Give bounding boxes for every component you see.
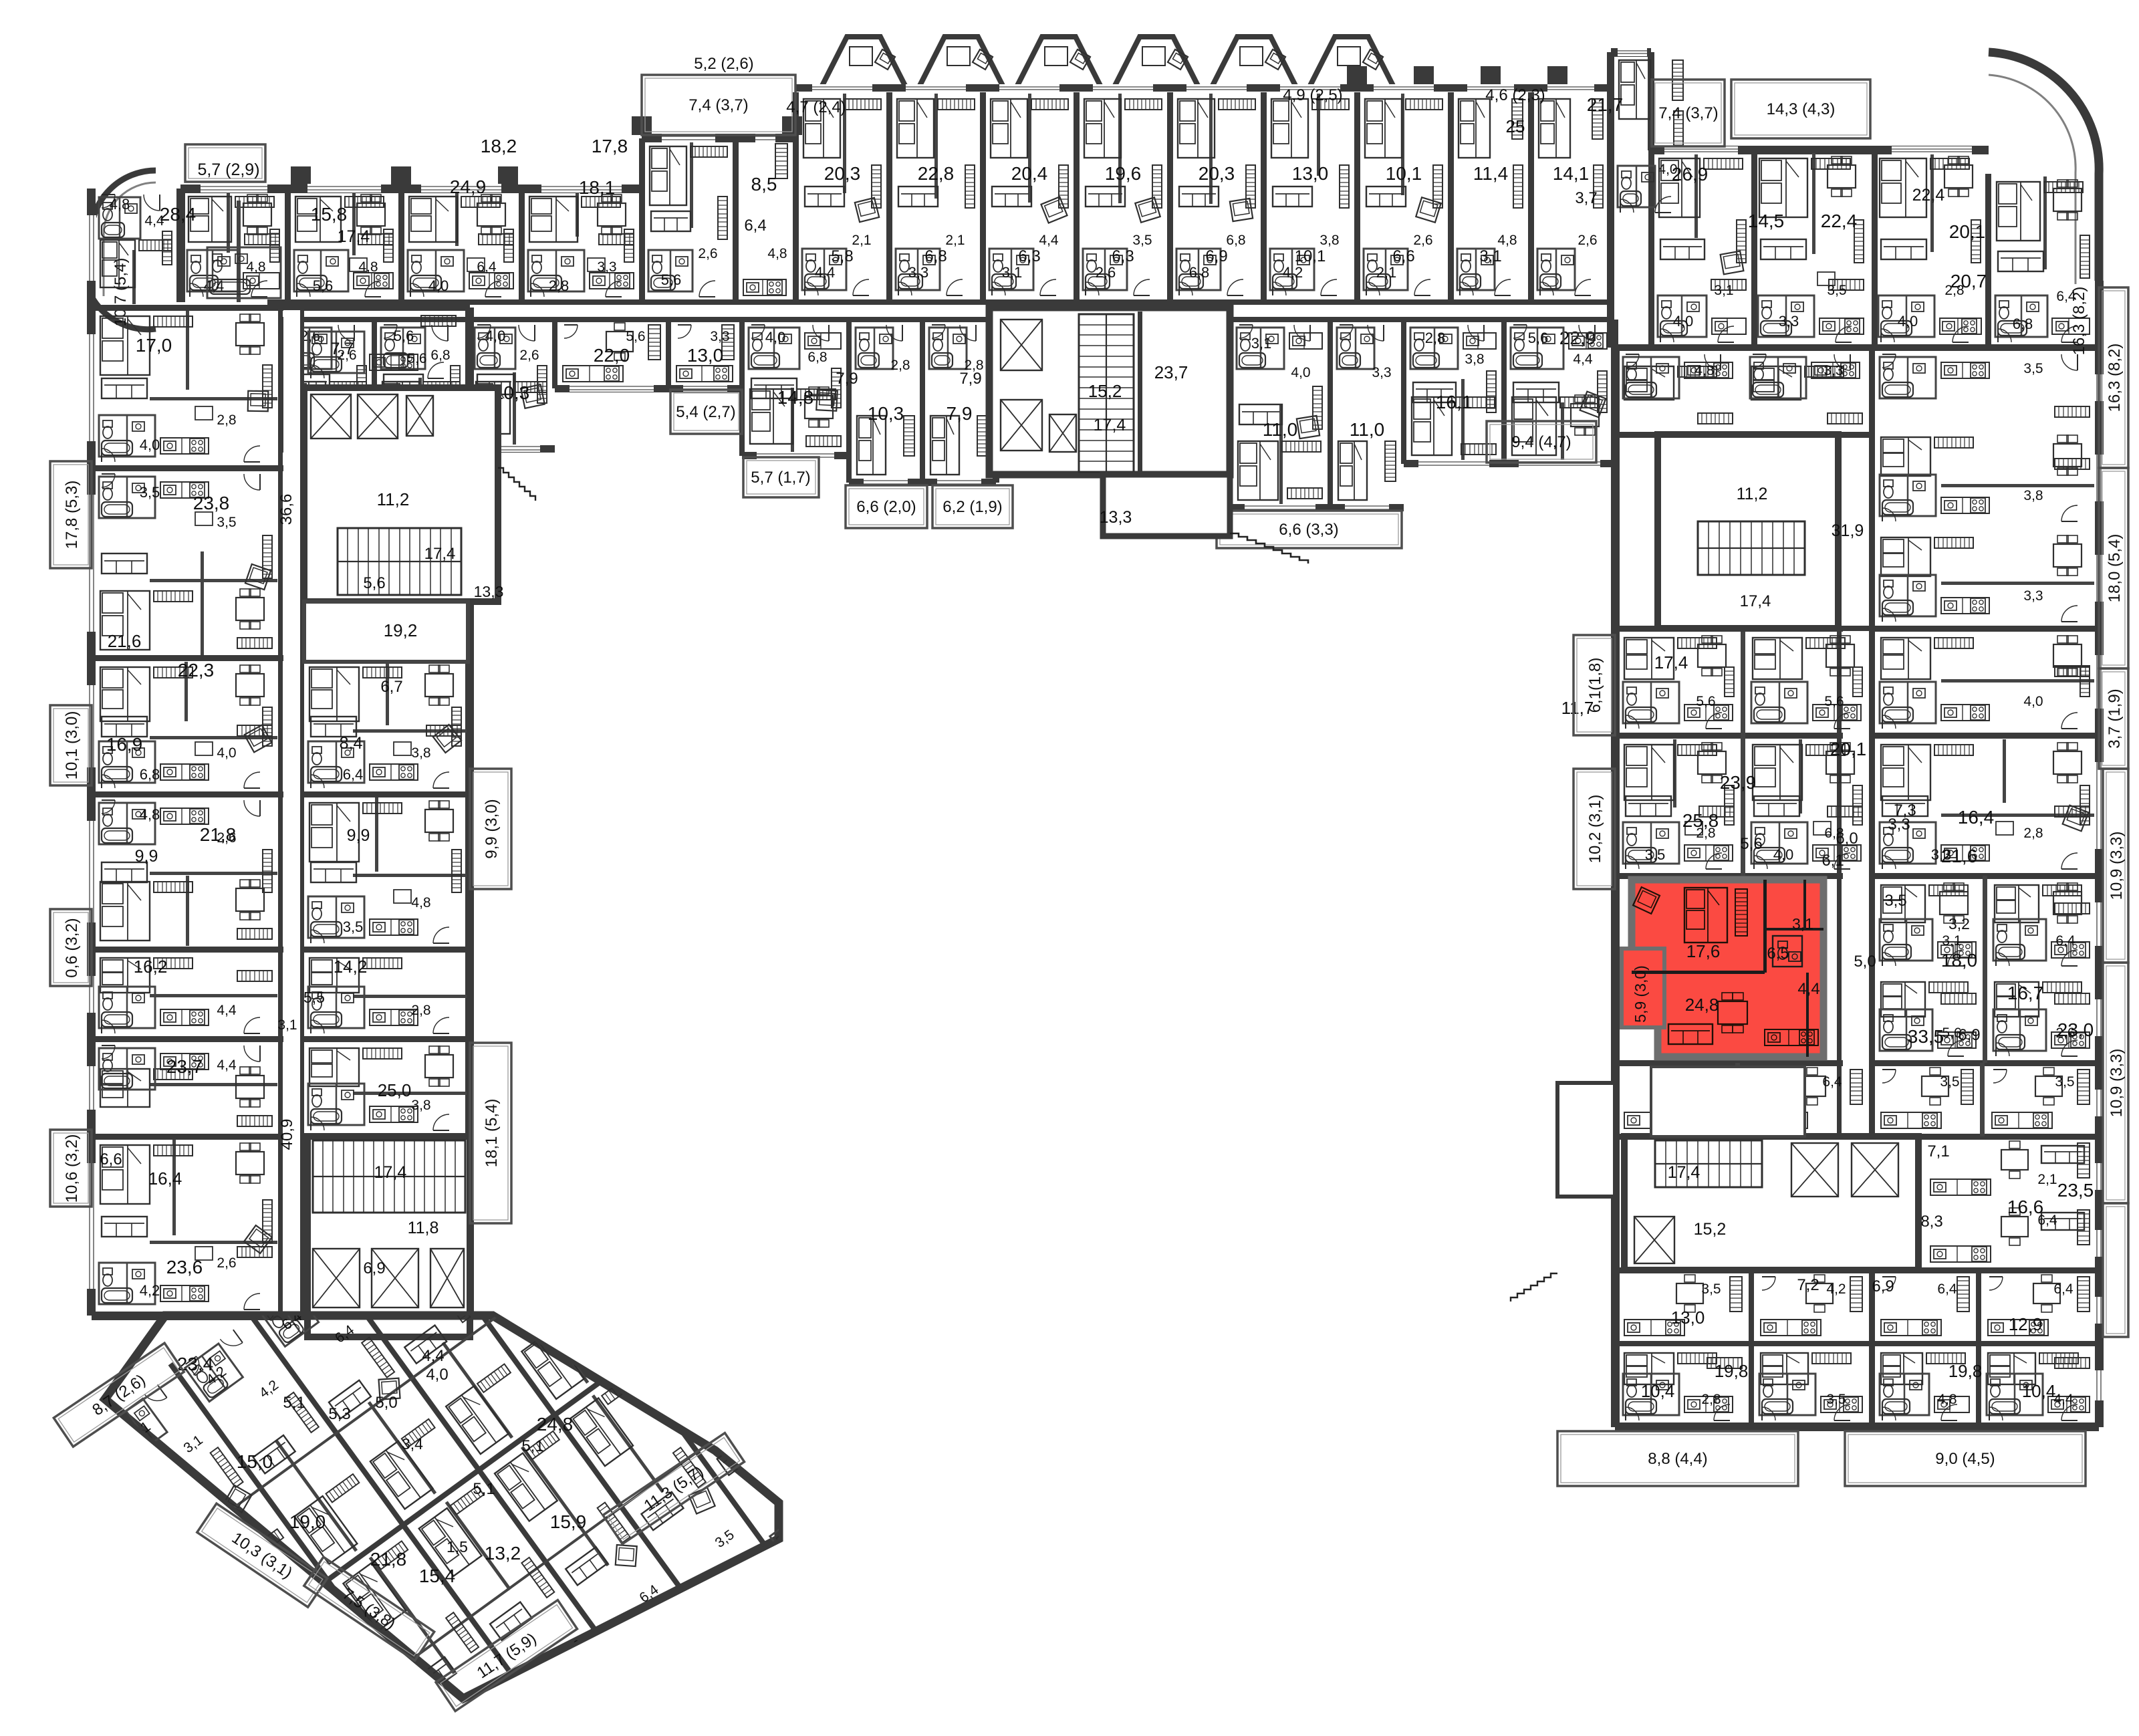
svg-text:5,8: 5,8: [831, 247, 853, 265]
svg-text:6,2 (1,9): 6,2 (1,9): [942, 498, 1002, 516]
svg-text:18,0: 18,0: [1941, 950, 1978, 971]
svg-text:31,9: 31,9: [1832, 521, 1864, 540]
svg-text:8,8 (4,4): 8,8 (4,4): [1648, 1450, 1707, 1468]
svg-text:6,4: 6,4: [477, 259, 497, 275]
svg-text:2,8: 2,8: [1701, 1392, 1721, 1407]
svg-text:11,0: 11,0: [1350, 419, 1384, 440]
svg-text:2,8: 2,8: [890, 358, 910, 373]
svg-text:7,9: 7,9: [959, 370, 981, 388]
svg-text:33,5: 33,5: [1908, 1026, 1944, 1047]
svg-text:6,9: 6,9: [1872, 1277, 1894, 1295]
svg-text:4,8: 4,8: [1937, 1392, 1957, 1407]
svg-text:4,0: 4,0: [140, 437, 160, 453]
svg-text:10,2 (3,1): 10,2 (3,1): [1586, 795, 1604, 864]
svg-text:17,4: 17,4: [1668, 1163, 1701, 1182]
svg-text:2,6: 2,6: [1413, 233, 1432, 248]
svg-text:3,3: 3,3: [1372, 365, 1391, 380]
svg-text:4,8: 4,8: [411, 895, 430, 910]
svg-text:7,7: 7,7: [331, 340, 354, 358]
svg-text:4,9 (2,5): 4,9 (2,5): [1283, 86, 1342, 104]
svg-text:5,4 (2,7): 5,4 (2,7): [676, 403, 735, 421]
svg-text:5,0: 5,0: [375, 1394, 397, 1412]
svg-text:7,9: 7,9: [947, 403, 973, 424]
svg-text:3,5: 3,5: [1884, 892, 1906, 910]
svg-text:5,6: 5,6: [407, 351, 426, 366]
svg-text:5,6: 5,6: [661, 271, 682, 288]
svg-text:17,4: 17,4: [374, 1163, 407, 1182]
svg-text:2,6: 2,6: [1578, 233, 1597, 248]
svg-text:3,3: 3,3: [597, 259, 616, 275]
svg-text:3,7: 3,7: [1575, 189, 1597, 207]
svg-text:3,1: 3,1: [1942, 933, 1961, 949]
svg-text:9,0 (4,5): 9,0 (4,5): [1935, 1450, 1995, 1468]
svg-text:5,1: 5,1: [473, 1480, 495, 1498]
svg-text:14,8: 14,8: [777, 387, 814, 408]
svg-text:2,1: 2,1: [2037, 1172, 2057, 1187]
svg-text:13,3: 13,3: [474, 583, 504, 600]
svg-text:17,4: 17,4: [1094, 416, 1126, 435]
svg-text:6,4: 6,4: [2055, 933, 2075, 949]
svg-text:10,4: 10,4: [1641, 1381, 1675, 1401]
svg-text:18,0 (5,4): 18,0 (5,4): [2106, 534, 2124, 603]
svg-text:40,9: 40,9: [278, 1119, 296, 1150]
svg-text:4,4: 4,4: [217, 1058, 237, 1073]
svg-text:2,6: 2,6: [519, 348, 539, 363]
svg-text:5,6: 5,6: [313, 277, 334, 294]
svg-text:16,6: 16,6: [2007, 1197, 2044, 1217]
svg-text:21,8: 21,8: [370, 1549, 407, 1570]
svg-text:4,8: 4,8: [140, 806, 160, 823]
svg-text:4,0: 4,0: [485, 328, 506, 344]
svg-text:1,5: 1,5: [447, 1538, 468, 1556]
svg-text:3,3: 3,3: [2023, 588, 2043, 604]
svg-text:4,4: 4,4: [1039, 233, 1059, 248]
svg-text:3,3: 3,3: [908, 264, 929, 281]
svg-text:17,4: 17,4: [1740, 592, 1771, 610]
svg-text:11,0: 11,0: [1263, 419, 1297, 440]
svg-text:4,8: 4,8: [110, 196, 130, 213]
svg-text:8,4: 8,4: [340, 734, 363, 753]
svg-text:8,5: 8,5: [751, 174, 777, 195]
svg-text:21,6: 21,6: [1941, 846, 1978, 866]
svg-text:6,1(1,8): 6,1(1,8): [1586, 658, 1604, 713]
svg-text:22,4: 22,4: [1821, 211, 1858, 231]
svg-text:3,5: 3,5: [1826, 1392, 1846, 1407]
svg-text:6,6: 6,6: [1392, 247, 1414, 265]
svg-text:5,6: 5,6: [1696, 694, 1715, 709]
svg-text:6,8: 6,8: [430, 348, 450, 363]
svg-text:9,4 (4,7): 9,4 (4,7): [1511, 433, 1571, 451]
svg-text:36,6: 36,6: [277, 494, 295, 525]
svg-text:10,1: 10,1: [1295, 247, 1326, 265]
svg-text:4,4: 4,4: [217, 1003, 237, 1018]
svg-text:2,8: 2,8: [217, 412, 236, 428]
svg-text:3,5: 3,5: [1940, 1074, 1959, 1090]
svg-text:16,9: 16,9: [106, 734, 143, 755]
svg-text:24,8: 24,8: [1685, 995, 1719, 1015]
svg-text:14,3 (4,3): 14,3 (4,3): [1767, 100, 1836, 118]
svg-text:3,8: 3,8: [1465, 352, 1484, 367]
svg-text:11,8: 11,8: [408, 1219, 439, 1237]
svg-text:6,6: 6,6: [100, 1150, 122, 1168]
svg-text:19,0: 19,0: [289, 1511, 326, 1532]
svg-text:2,8: 2,8: [1425, 330, 1446, 346]
svg-text:6,9: 6,9: [1958, 1026, 1980, 1044]
svg-text:16,4: 16,4: [1958, 807, 1995, 828]
svg-text:13,0: 13,0: [687, 345, 724, 366]
svg-text:6,9: 6,9: [1205, 247, 1227, 265]
svg-text:25,8: 25,8: [1682, 810, 1719, 831]
svg-text:20,7: 20,7: [1951, 271, 1987, 291]
svg-text:5,6: 5,6: [1740, 835, 1762, 853]
svg-text:10,9 (3,3): 10,9 (3,3): [2108, 1049, 2126, 1118]
svg-text:6,5: 6,5: [1767, 945, 1789, 963]
svg-text:7,2: 7,2: [1797, 1276, 1819, 1294]
svg-text:3,5: 3,5: [2023, 361, 2043, 376]
svg-text:16,3 (8,2): 16,3 (8,2): [2070, 287, 2088, 356]
svg-text:3,5: 3,5: [2055, 1074, 2074, 1090]
svg-text:3,5: 3,5: [140, 484, 160, 501]
svg-text:19,6: 19,6: [1105, 163, 1142, 184]
svg-text:4,4: 4,4: [1797, 980, 1819, 998]
svg-text:4,0: 4,0: [1773, 846, 1794, 863]
svg-text:4,0: 4,0: [428, 277, 449, 294]
svg-text:20,3: 20,3: [1199, 163, 1235, 184]
svg-text:22,4: 22,4: [1912, 186, 1945, 205]
svg-text:6,7: 6,7: [380, 678, 402, 696]
svg-text:6,4: 6,4: [1937, 1281, 1957, 1297]
svg-text:3,1: 3,1: [277, 1017, 297, 1033]
svg-text:4,2: 4,2: [1826, 1281, 1846, 1297]
svg-text:20,1: 20,1: [1830, 739, 1867, 759]
svg-text:3,5: 3,5: [1645, 846, 1666, 863]
svg-text:4,8: 4,8: [1497, 233, 1517, 248]
svg-text:4,8: 4,8: [767, 246, 787, 261]
svg-text:4,4: 4,4: [2053, 1392, 2073, 1407]
svg-text:6,8: 6,8: [1226, 233, 1245, 248]
svg-text:12,9: 12,9: [2009, 1314, 2043, 1334]
svg-text:28,4: 28,4: [160, 204, 197, 225]
svg-text:4,4: 4,4: [422, 1347, 444, 1365]
svg-text:16,3 (8,2): 16,3 (8,2): [2106, 344, 2124, 412]
svg-text:3,3: 3,3: [1823, 363, 1843, 378]
svg-text:6,8: 6,8: [2013, 316, 2033, 332]
svg-text:22,0: 22,0: [594, 345, 630, 366]
svg-text:2,1: 2,1: [852, 233, 871, 248]
svg-text:6,4: 6,4: [1822, 1074, 1842, 1090]
svg-text:10,9 (3,3): 10,9 (3,3): [2108, 832, 2126, 900]
svg-text:17,4: 17,4: [424, 545, 456, 563]
svg-text:4,0: 4,0: [2023, 694, 2043, 709]
svg-text:4,4: 4,4: [144, 213, 164, 229]
svg-text:16,4: 16,4: [148, 1168, 182, 1189]
svg-text:6,0: 6,0: [1836, 830, 1858, 848]
svg-text:10,3: 10,3: [868, 403, 904, 424]
svg-text:2,6: 2,6: [1096, 264, 1116, 281]
svg-text:5,9 (3,0): 5,9 (3,0): [1632, 965, 1649, 1023]
svg-text:2,1: 2,1: [945, 233, 965, 248]
svg-text:2,1: 2,1: [1376, 264, 1397, 281]
svg-text:7,1: 7,1: [1927, 1142, 1949, 1160]
svg-text:18,1 (5,4): 18,1 (5,4): [483, 1099, 501, 1168]
svg-text:18,1: 18,1: [579, 177, 616, 198]
svg-text:11,2: 11,2: [377, 489, 410, 509]
svg-text:20,4: 20,4: [1011, 163, 1048, 184]
svg-text:14,1: 14,1: [1553, 163, 1590, 184]
svg-text:23,8: 23,8: [193, 493, 230, 513]
svg-text:25,0: 25,0: [378, 1080, 412, 1100]
svg-text:15,2: 15,2: [1088, 381, 1122, 401]
svg-text:23,5: 23,5: [2057, 1180, 2094, 1201]
svg-text:2,8: 2,8: [2023, 826, 2043, 841]
svg-text:8,3: 8,3: [1920, 1213, 1942, 1231]
svg-text:3,8: 3,8: [411, 1098, 430, 1113]
svg-text:24,9: 24,9: [450, 176, 487, 197]
svg-text:2,8: 2,8: [549, 277, 570, 294]
svg-text:4,0: 4,0: [426, 1366, 448, 1384]
svg-text:6,4: 6,4: [343, 766, 364, 783]
svg-text:10,1 (3,0): 10,1 (3,0): [63, 711, 81, 780]
svg-text:18,2: 18,2: [481, 136, 517, 156]
svg-text:21,7: 21,7: [1587, 94, 1624, 115]
svg-text:5,6: 5,6: [363, 574, 385, 592]
svg-text:4,8: 4,8: [358, 259, 378, 275]
svg-text:6,6 (2,0): 6,6 (2,0): [856, 498, 916, 516]
svg-text:15,4: 15,4: [419, 1566, 456, 1586]
svg-text:3,8: 3,8: [1319, 233, 1339, 248]
svg-text:19,2: 19,2: [384, 620, 418, 640]
svg-text:10,6 (3,2): 10,6 (3,2): [63, 1134, 81, 1203]
svg-text:17,4: 17,4: [1654, 652, 1688, 672]
svg-text:3,1: 3,1: [1792, 915, 1813, 933]
svg-text:25: 25: [1506, 116, 1525, 136]
svg-text:5,2 (2,6): 5,2 (2,6): [694, 55, 753, 73]
svg-text:6,6 (3,3): 6,6 (3,3): [1279, 521, 1338, 539]
svg-text:15,0: 15,0: [237, 1451, 273, 1472]
svg-text:6,8: 6,8: [140, 766, 160, 783]
svg-text:10,4: 10,4: [2022, 1381, 2056, 1401]
svg-text:19,8: 19,8: [1948, 1361, 1983, 1381]
svg-text:0,6 (3,2): 0,6 (3,2): [63, 918, 81, 977]
svg-text:20,3: 20,3: [824, 163, 861, 184]
svg-text:6,4: 6,4: [744, 217, 766, 235]
svg-text:14,2: 14,2: [334, 957, 368, 977]
svg-text:3,1: 3,1: [1714, 283, 1733, 298]
svg-text:26,9: 26,9: [1672, 164, 1709, 184]
svg-text:4,7 (2,4): 4,7 (2,4): [786, 98, 846, 116]
svg-text:5,0: 5,0: [1854, 953, 1876, 971]
svg-text:23,7: 23,7: [166, 1056, 203, 1077]
svg-text:13,0: 13,0: [1292, 163, 1329, 184]
svg-text:5,6: 5,6: [1824, 694, 1844, 709]
svg-text:3,5: 3,5: [1132, 233, 1152, 248]
svg-text:9,9: 9,9: [135, 847, 158, 866]
svg-text:15,8: 15,8: [311, 204, 348, 225]
svg-text:3,2: 3,2: [1948, 915, 1970, 933]
svg-text:3,5: 3,5: [217, 515, 236, 530]
svg-text:5,1: 5,1: [521, 1437, 543, 1455]
svg-text:6,3: 6,3: [1018, 247, 1040, 265]
svg-text:17,0: 17,0: [136, 335, 172, 356]
svg-text:17,8 (5,3): 17,8 (5,3): [63, 481, 81, 549]
svg-text:13,0: 13,0: [1671, 1308, 1705, 1328]
svg-text:6,8: 6,8: [1189, 264, 1210, 281]
svg-text:4,0: 4,0: [765, 329, 786, 346]
svg-text:15,9: 15,9: [550, 1511, 587, 1532]
svg-text:5,6: 5,6: [394, 328, 414, 344]
svg-text:5,7 (1,7): 5,7 (1,7): [751, 469, 810, 487]
svg-text:23,9: 23,9: [1720, 772, 1757, 793]
svg-text:4,0: 4,0: [1291, 365, 1310, 380]
svg-text:6,9: 6,9: [363, 1259, 385, 1277]
svg-text:17,4: 17,4: [338, 227, 370, 246]
svg-text:4,0: 4,0: [1673, 313, 1694, 330]
svg-text:3,5: 3,5: [1827, 283, 1846, 298]
svg-text:4,8: 4,8: [1694, 363, 1714, 378]
svg-text:7,4 (3,7): 7,4 (3,7): [1658, 104, 1718, 122]
svg-text:24,8: 24,8: [537, 1414, 574, 1435]
svg-text:22,8: 22,8: [918, 163, 955, 184]
svg-text:3,5: 3,5: [1701, 1281, 1721, 1297]
svg-text:3,3: 3,3: [1888, 816, 1910, 834]
svg-text:4,6 (2,3): 4,6 (2,3): [1485, 86, 1545, 104]
svg-text:5,5: 5,5: [303, 989, 325, 1006]
svg-text:4,4: 4,4: [1573, 352, 1593, 367]
svg-text:11,4: 11,4: [1473, 163, 1508, 184]
svg-text:9,9 (3,0): 9,9 (3,0): [483, 799, 501, 858]
svg-text:7,4 (3,7): 7,4 (3,7): [688, 96, 748, 114]
svg-text:11,2: 11,2: [1737, 485, 1768, 503]
svg-text:5,6: 5,6: [626, 329, 645, 344]
svg-text:21,6: 21,6: [108, 631, 142, 651]
svg-text:17,8: 17,8: [592, 136, 628, 156]
svg-text:22,3: 22,3: [178, 660, 215, 680]
svg-text:14,5: 14,5: [1748, 211, 1785, 231]
svg-text:3,1: 3,1: [1479, 247, 1501, 265]
svg-text:7,9: 7,9: [836, 370, 858, 388]
svg-text:4,0: 4,0: [217, 745, 236, 761]
svg-text:4,2: 4,2: [1283, 264, 1303, 281]
svg-text:6,8: 6,8: [924, 247, 947, 265]
svg-text:3,8: 3,8: [2023, 488, 2043, 503]
svg-text:6,3: 6,3: [1112, 247, 1134, 265]
svg-text:16,1: 16,1: [1436, 392, 1473, 412]
svg-text:3,1: 3,1: [1251, 335, 1272, 352]
svg-text:3,4: 3,4: [402, 1435, 423, 1453]
svg-text:3,7 (1,9): 3,7 (1,9): [2106, 689, 2124, 748]
svg-text:15,2: 15,2: [1694, 1220, 1727, 1239]
svg-text:4,8: 4,8: [246, 259, 265, 275]
svg-text:3,5: 3,5: [343, 918, 364, 935]
svg-text:5,7 (2,9): 5,7 (2,9): [197, 160, 259, 179]
svg-text:23,7: 23,7: [1154, 362, 1188, 382]
svg-text:4,4: 4,4: [815, 264, 836, 281]
svg-text:21,8: 21,8: [200, 824, 237, 845]
svg-text:3,3: 3,3: [710, 329, 729, 344]
svg-text:5,3: 5,3: [328, 1405, 350, 1423]
svg-text:23,6: 23,6: [166, 1257, 203, 1277]
svg-text:19,8: 19,8: [1715, 1361, 1749, 1381]
svg-text:13,2: 13,2: [485, 1543, 521, 1564]
svg-text:3,8: 3,8: [411, 745, 430, 761]
svg-text:6,1: 6,1: [1821, 852, 1844, 870]
svg-text:10,1: 10,1: [1386, 163, 1422, 184]
svg-text:6,4: 6,4: [2053, 1281, 2073, 1297]
svg-text:5,6: 5,6: [1528, 330, 1549, 346]
svg-text:23,0: 23,0: [2057, 1019, 2094, 1040]
svg-text:2,6: 2,6: [217, 1255, 236, 1271]
svg-text:5,1: 5,1: [283, 1394, 305, 1412]
svg-text:2,8: 2,8: [411, 1003, 430, 1018]
svg-text:6,8: 6,8: [807, 350, 827, 365]
svg-text:20,1: 20,1: [1949, 221, 1986, 242]
svg-text:9,9: 9,9: [347, 826, 370, 845]
svg-text:2,6: 2,6: [698, 246, 717, 261]
svg-text:13,3: 13,3: [1100, 508, 1132, 527]
svg-text:4,0: 4,0: [1898, 313, 1918, 330]
svg-text:4,2: 4,2: [140, 1282, 160, 1299]
svg-text:16,7: 16,7: [2007, 983, 2044, 1003]
svg-text:17,6: 17,6: [1686, 941, 1721, 961]
svg-text:3,3: 3,3: [1779, 313, 1799, 330]
svg-text:16,2: 16,2: [134, 957, 168, 977]
svg-text:3,1: 3,1: [1002, 264, 1023, 281]
